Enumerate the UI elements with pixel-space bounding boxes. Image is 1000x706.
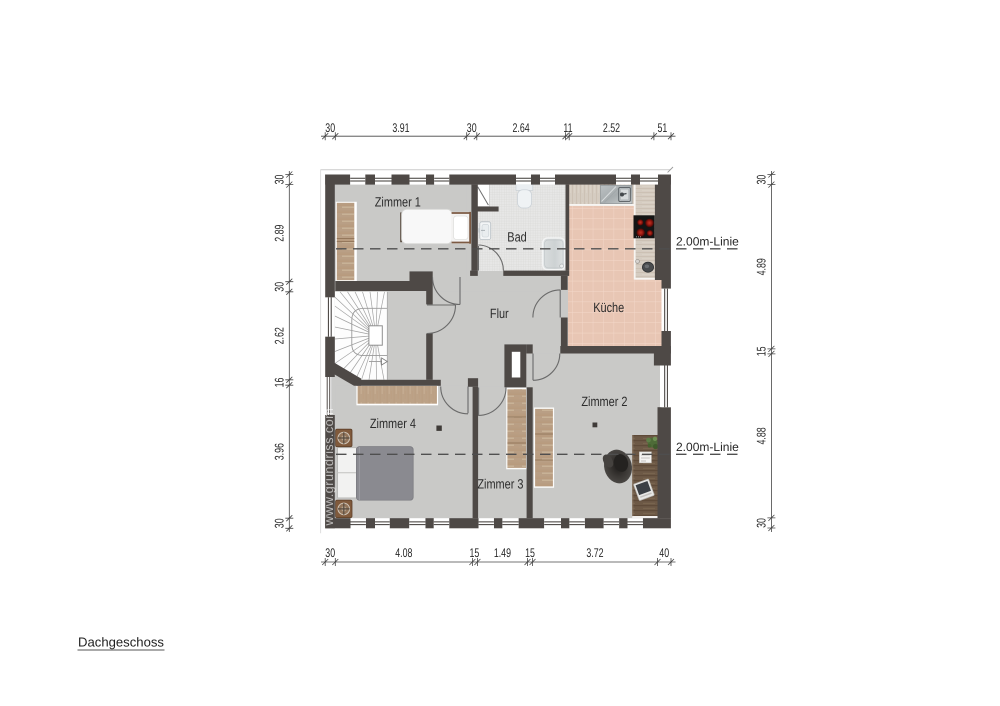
svg-text:30: 30 (467, 121, 477, 135)
svg-text:Zimmer 1: Zimmer 1 (375, 195, 421, 210)
svg-text:Zimmer 3: Zimmer 3 (477, 477, 523, 492)
svg-text:4.08: 4.08 (395, 546, 412, 560)
svg-text:30: 30 (755, 518, 769, 528)
svg-text:30: 30 (273, 282, 287, 292)
svg-text:2.64: 2.64 (513, 121, 530, 135)
svg-text:2.89: 2.89 (273, 225, 287, 242)
svg-text:4.89: 4.89 (755, 258, 769, 275)
svg-text:2.62: 2.62 (273, 327, 287, 344)
svg-text:2.00m-Linie: 2.00m-Linie (676, 440, 739, 454)
svg-text:Flur: Flur (490, 306, 509, 321)
svg-text:1.49: 1.49 (494, 546, 511, 560)
svg-text:15: 15 (755, 346, 769, 356)
svg-text:15: 15 (525, 546, 535, 560)
svg-text:3.91: 3.91 (392, 121, 409, 135)
svg-text:Küche: Küche (593, 300, 624, 315)
svg-text:2.52: 2.52 (603, 121, 620, 135)
svg-text:Dachgeschoss: Dachgeschoss (78, 635, 164, 650)
svg-text:Zimmer 2: Zimmer 2 (581, 394, 627, 409)
svg-text:40: 40 (659, 546, 669, 560)
svg-text:www.grundriss.com: www.grundriss.com (321, 408, 336, 527)
svg-text:30: 30 (325, 121, 335, 135)
svg-text:30: 30 (325, 546, 335, 560)
svg-text:3.96: 3.96 (273, 443, 287, 460)
svg-text:11: 11 (563, 121, 572, 135)
svg-text:30: 30 (273, 518, 287, 528)
svg-text:15: 15 (469, 546, 479, 560)
svg-text:16: 16 (273, 378, 287, 388)
svg-text:2.00m-Linie: 2.00m-Linie (676, 235, 739, 249)
svg-text:51: 51 (657, 121, 667, 135)
svg-text:3.72: 3.72 (586, 546, 603, 560)
svg-text:Bad: Bad (507, 229, 526, 244)
svg-text:30: 30 (273, 175, 287, 185)
svg-text:30: 30 (755, 175, 769, 185)
svg-text:4.88: 4.88 (755, 427, 769, 444)
svg-text:Zimmer 4: Zimmer 4 (370, 416, 417, 431)
